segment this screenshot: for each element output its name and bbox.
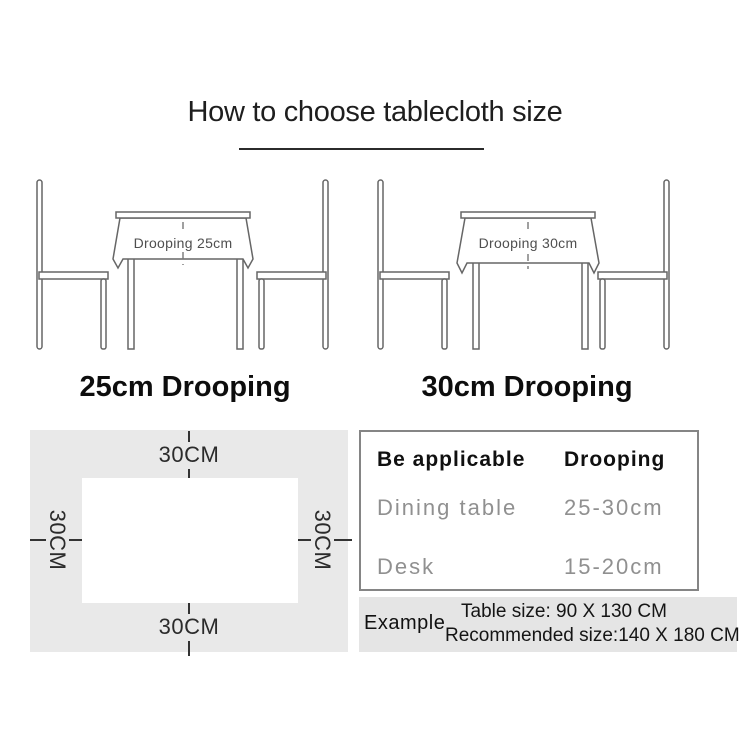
table-with-cloth-icon: Drooping 25cm xyxy=(113,212,253,349)
tick-left-outer xyxy=(30,539,46,541)
label-top-30cm: 30CM xyxy=(154,443,224,467)
example-table-size: Table size: 90 X 130 CM xyxy=(461,601,667,623)
example-strip: Example Table size: 90 X 130 CM Recommen… xyxy=(359,597,737,652)
caption-25cm-drooping: 25cm Drooping xyxy=(10,371,360,404)
drooping-spec-table: Be applicable Drooping Dining table 25-3… xyxy=(359,430,699,591)
tick-top-inner xyxy=(188,469,190,478)
spec-row-dining-table: Dining table xyxy=(377,495,517,521)
tick-bottom-inner xyxy=(188,603,190,614)
drooping-25cm-annotation: Drooping 25cm xyxy=(134,235,233,251)
size-diagram-panel: 30CM 30CM 30CM 30CM xyxy=(30,430,348,652)
spec-row-dining-value: 25-30cm xyxy=(564,495,664,521)
example-recommended-size: Recommended size:140 X 180 CM xyxy=(445,625,740,647)
tick-right-outer xyxy=(334,539,352,541)
label-bottom-30cm: 30CM xyxy=(154,615,224,639)
chair-right-icon xyxy=(598,180,669,349)
table-30cm-diagram-icon: Drooping 30cm xyxy=(368,172,708,357)
caption-30cm-drooping: 30cm Drooping xyxy=(352,371,702,404)
spec-row-desk: Desk xyxy=(377,554,435,580)
chair-left-icon xyxy=(378,180,449,349)
label-left-30cm: 30CM xyxy=(45,505,69,575)
table-25cm-diagram-icon: Drooping 25cm xyxy=(20,172,360,357)
title-underline xyxy=(239,148,484,150)
spec-header-drooping: Drooping xyxy=(564,448,665,472)
spec-row-desk-value: 15-20cm xyxy=(564,554,664,580)
spec-header-applicable: Be applicable xyxy=(377,448,525,472)
page-title: How to choose tablecloth size xyxy=(0,96,750,129)
tick-top-outer xyxy=(188,431,190,442)
tick-bottom-outer xyxy=(188,641,190,656)
tick-left-inner xyxy=(69,539,82,541)
drooping-30cm-annotation: Drooping 30cm xyxy=(479,235,578,251)
chair-right-icon xyxy=(257,180,328,349)
table-with-cloth-icon: Drooping 30cm xyxy=(457,212,599,349)
chair-left-icon xyxy=(37,180,108,349)
table-top-rect xyxy=(82,478,298,603)
label-right-30cm: 30CM xyxy=(310,505,334,575)
tablecloth-size-infographic: How to choose tablecloth size Drooping 2… xyxy=(0,0,750,750)
example-label: Example xyxy=(364,612,445,635)
